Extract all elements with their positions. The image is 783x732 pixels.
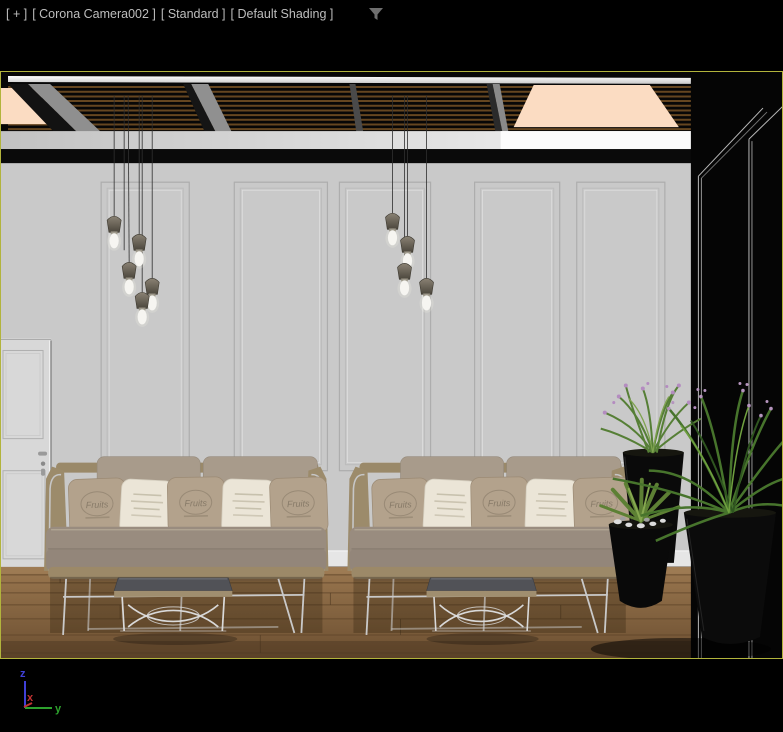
render-scene: Fruits — [1, 72, 782, 658]
axis-y-label: y — [55, 703, 62, 715]
axis-x-label: x — [27, 692, 34, 704]
axis-z-label: z — [20, 668, 26, 680]
viewport-menu-shading[interactable]: [ Default Shading ] — [231, 7, 334, 22]
ceiling-light-panel-right[interactable] — [514, 85, 679, 127]
viewport-menu-camera[interactable]: [ Corona Camera002 ] — [32, 7, 156, 22]
viewport-camera-view[interactable]: Fruits — [0, 71, 783, 659]
door[interactable] — [1, 338, 51, 566]
viewport-label-bar: [ + ] [ Corona Camera002 ] [ Standard ] … — [6, 7, 333, 22]
app-window: [ + ] [ Corona Camera002 ] [ Standard ] … — [0, 0, 783, 732]
ceiling — [1, 72, 782, 163]
viewport-menu-general[interactable]: [ + ] — [6, 7, 27, 22]
viewport-menu-render-preset[interactable]: [ Standard ] — [161, 7, 226, 22]
world-axis-gizmo: z y x — [0, 659, 120, 732]
viewport-filter-funnel-icon[interactable] — [368, 7, 384, 22]
